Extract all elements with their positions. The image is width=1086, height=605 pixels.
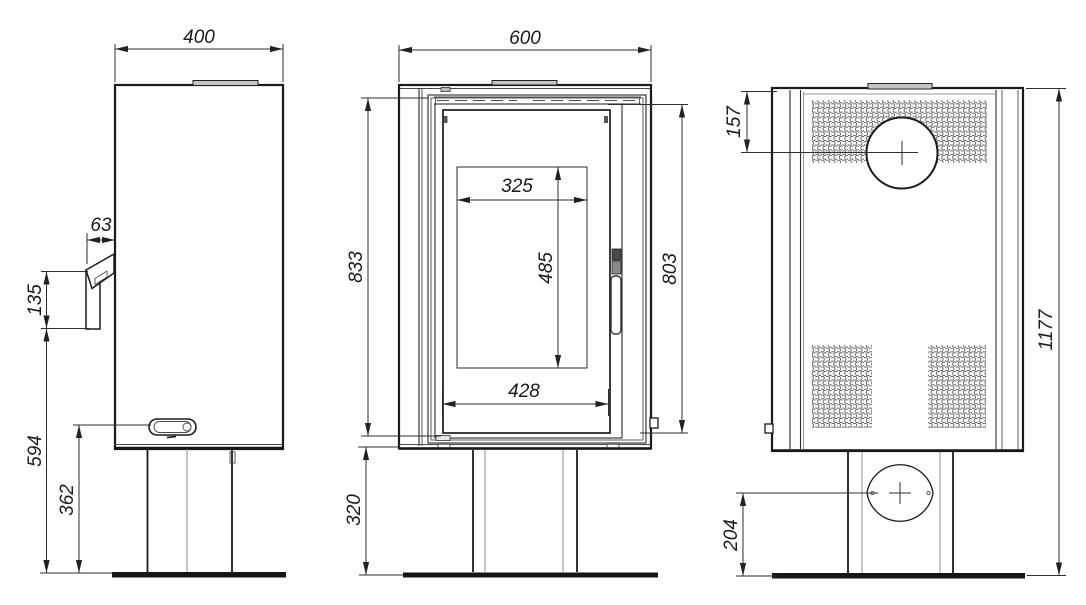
side-pedestal bbox=[148, 449, 236, 572]
dim-label-air-inlet-height: 204 bbox=[721, 519, 742, 552]
front-hinge-pin-left bbox=[444, 116, 448, 123]
front-door-air-vent bbox=[434, 88, 641, 105]
dim-label-side-connector-height: 362 bbox=[57, 484, 78, 516]
dim-label-side-handle-height: 135 bbox=[25, 284, 46, 316]
front-pedestal bbox=[473, 450, 577, 572]
front-side-bracket bbox=[650, 418, 658, 428]
front-top-vent-strip bbox=[492, 81, 557, 86]
rear-base-plate bbox=[772, 573, 1025, 579]
dim-label-front-door-frame-height: 833 bbox=[346, 251, 367, 283]
dim-label-side-handle-offset: 63 bbox=[90, 215, 112, 236]
dim-label-glass-view-width: 325 bbox=[501, 176, 533, 197]
side-view-drawing bbox=[86, 81, 286, 578]
rear-perforation-left bbox=[812, 345, 872, 428]
dim-label-front-door-height: 803 bbox=[660, 253, 681, 285]
dim-label-front-pedestal-height: 320 bbox=[344, 494, 365, 526]
rear-side-bracket bbox=[765, 424, 773, 433]
technical-drawing: 400 63 135 594 362 bbox=[0, 0, 1086, 605]
side-door-latch bbox=[86, 254, 114, 329]
dim-label-side-depth: 400 bbox=[183, 27, 215, 48]
side-connector-oval bbox=[149, 419, 196, 438]
rear-view-drawing bbox=[765, 84, 1025, 579]
side-body bbox=[115, 85, 283, 449]
glass-view-dimension-box bbox=[457, 167, 587, 368]
front-hinge-pin-right bbox=[604, 116, 608, 123]
dim-label-front-width: 600 bbox=[509, 28, 541, 49]
side-top-vent-strip bbox=[193, 81, 258, 86]
dim-label-front-glass-width: 428 bbox=[508, 381, 540, 402]
rear-top-strip bbox=[868, 84, 932, 90]
side-base-plate bbox=[112, 572, 286, 578]
dim-label-flue-center-offset: 157 bbox=[724, 105, 745, 138]
dim-label-total-height: 1177 bbox=[1036, 308, 1057, 350]
rear-perforation-right bbox=[928, 345, 986, 428]
side-view-dimensions: 400 63 135 594 362 bbox=[25, 27, 283, 573]
front-base-plate bbox=[403, 573, 658, 578]
front-view-drawing bbox=[399, 81, 658, 578]
stove-dimension-drawing-svg: 400 63 135 594 362 bbox=[0, 0, 1086, 605]
front-door-handle bbox=[611, 249, 621, 334]
dim-label-glass-view-height: 485 bbox=[536, 252, 557, 284]
dim-label-side-handle-bottom-height: 594 bbox=[25, 435, 46, 467]
